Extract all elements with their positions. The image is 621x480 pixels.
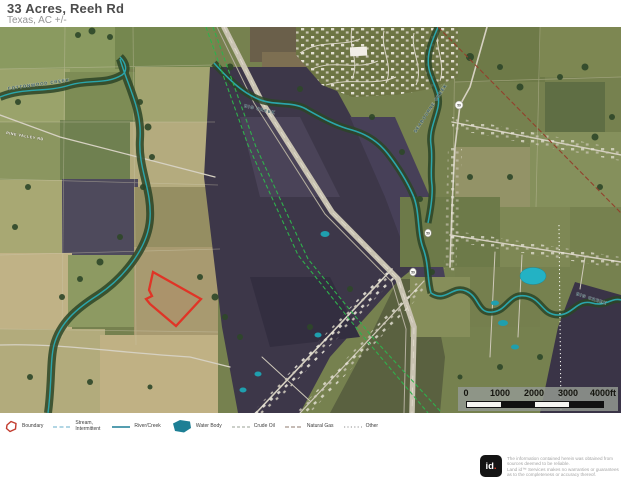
scale-tick: 1000	[490, 388, 510, 398]
legend-item-other: Other	[343, 422, 379, 432]
scale-tick: 2000	[524, 388, 544, 398]
other-line-icon	[343, 422, 363, 432]
scale-tick: 3000	[558, 388, 578, 398]
logo-dot: .	[494, 461, 497, 472]
logo-text: id	[485, 461, 493, 472]
route-number: 59	[426, 231, 430, 235]
disclaimer-text: The information contained herein was obt…	[507, 456, 620, 478]
legend-item-water-body: Water Body	[170, 419, 222, 434]
pond	[520, 268, 546, 285]
legend-item-boundary: Boundary	[4, 420, 43, 433]
legend-label: River/Creek	[134, 424, 160, 430]
legend-item-natural-gas: Natural Gas	[284, 422, 334, 432]
aerial-map-canvas: 59 59 59 COTTONWOOD CREEK BIG CREEK SEAB…	[0, 27, 621, 413]
legend-label: Other	[366, 424, 379, 430]
crude-oil-icon	[231, 422, 251, 432]
legend-label: Stream, Intermittent	[75, 421, 102, 432]
aerial-map[interactable]: 59 59 59 COTTONWOOD CREEK BIG CREEK SEAB…	[0, 27, 621, 413]
route-number: 59	[411, 270, 415, 274]
legend-label: Boundary	[22, 424, 43, 430]
scale-bar: 0 1000 2000 3000 4000ft	[458, 387, 618, 411]
natural-gas-icon	[284, 422, 304, 432]
boundary-icon	[4, 420, 19, 433]
map-report-page: 33 Acres, Reeh Rd Texas, AC +/-	[0, 0, 621, 480]
route-number: 59	[457, 103, 461, 107]
disclaimer-line: as to the completeness or accuracy there…	[507, 472, 620, 477]
legend-item-stream: Stream, Intermittent	[52, 421, 102, 432]
map-legend: Boundary Stream, Intermittent River/Cree…	[4, 419, 387, 434]
legend-label: Water Body	[196, 424, 222, 430]
legend-label: Natural Gas	[307, 424, 334, 430]
land-id-logo: id.	[480, 455, 502, 477]
large-building	[350, 47, 367, 57]
legend-label: Crude Oil	[254, 424, 275, 430]
stream-intermittent-icon	[52, 422, 72, 432]
river-creek-icon	[111, 422, 131, 432]
page-subtitle: Texas, AC +/-	[7, 15, 67, 26]
page-title: 33 Acres, Reeh Rd	[7, 1, 124, 16]
scale-tick: 0	[463, 388, 468, 398]
water-body-icon	[170, 419, 193, 434]
scale-bar-segments	[466, 401, 604, 408]
legend-item-river-creek: River/Creek	[111, 422, 160, 432]
legend-item-crude-oil: Crude Oil	[231, 422, 275, 432]
scale-end-label: 4000ft	[590, 388, 616, 398]
